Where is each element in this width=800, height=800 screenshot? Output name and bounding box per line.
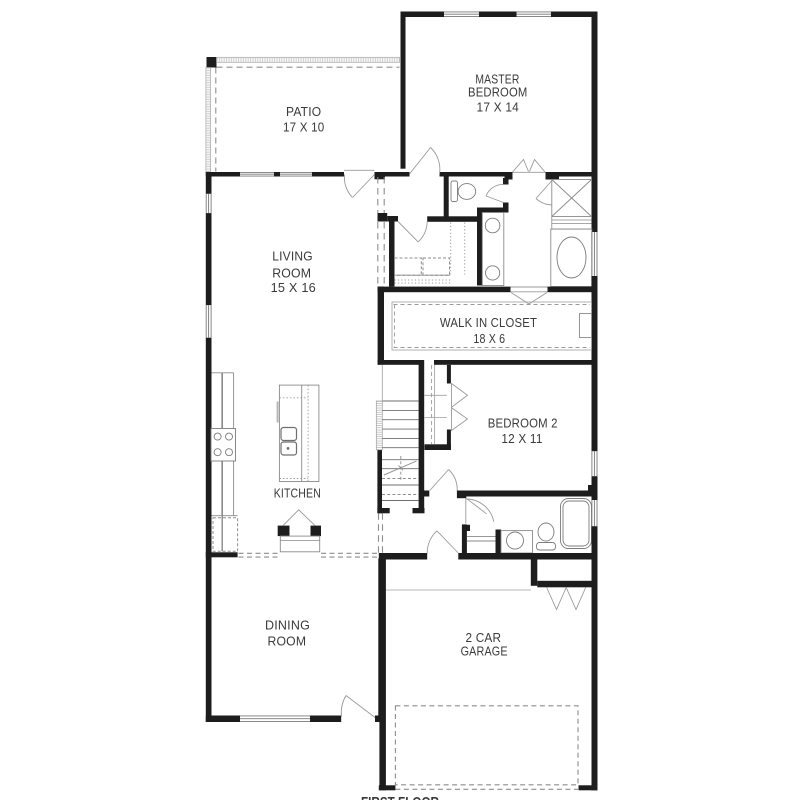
svg-text:FIRST FLOOR: FIRST FLOOR xyxy=(361,795,439,800)
svg-text:WALK IN CLOSET: WALK IN CLOSET xyxy=(440,316,537,330)
svg-text:BEDROOM: BEDROOM xyxy=(468,85,528,99)
svg-text:2 CAR: 2 CAR xyxy=(466,631,502,645)
svg-text:PATIO: PATIO xyxy=(286,105,321,119)
svg-text:15 X 16: 15 X 16 xyxy=(271,281,316,295)
svg-text:GARAGE: GARAGE xyxy=(461,644,508,658)
svg-text:LIVING: LIVING xyxy=(272,249,313,263)
svg-text:ROOM: ROOM xyxy=(272,266,311,280)
svg-text:17 X 10: 17 X 10 xyxy=(283,120,324,134)
svg-text:BEDROOM 2: BEDROOM 2 xyxy=(488,416,558,430)
svg-text:DINING: DINING xyxy=(265,619,310,633)
svg-text:KITCHEN: KITCHEN xyxy=(274,487,321,501)
svg-text:12 X 11: 12 X 11 xyxy=(501,432,542,446)
svg-text:18 X 6: 18 X 6 xyxy=(473,332,505,346)
svg-text:17 X 14: 17 X 14 xyxy=(477,101,520,115)
svg-text:ROOM: ROOM xyxy=(268,635,307,649)
